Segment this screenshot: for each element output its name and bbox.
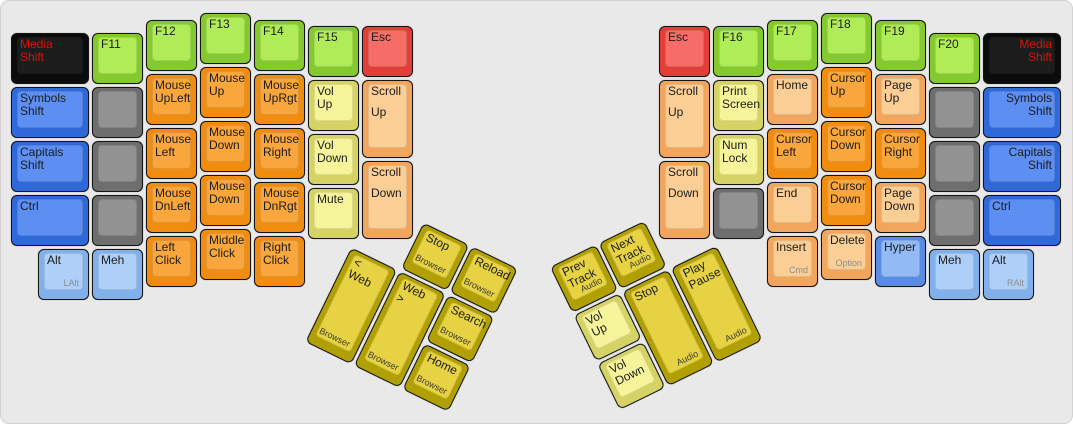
keycap-top: Vol Up [314, 84, 353, 121]
key-label: Web > [394, 280, 435, 318]
keycap-top: SearchBrowser [436, 301, 487, 351]
key-label: Page Down [884, 187, 917, 213]
key-label: Hyper [884, 241, 917, 254]
key-label: Mouse Down [209, 126, 242, 152]
keycap-top: StopBrowser [411, 229, 462, 279]
keycap-top [935, 91, 974, 128]
keycap-top: Num Lock [719, 138, 758, 175]
key-meh-left[interactable]: Meh [92, 249, 143, 300]
key-right-click[interactable]: Right Click [254, 236, 305, 287]
key-meh-right[interactable]: Meh [929, 249, 980, 300]
key-mouse-right[interactable]: Mouse Right [254, 128, 305, 179]
keycap-top: ScrollDown [368, 165, 407, 229]
keycap-top: F13 [206, 17, 245, 54]
key-esc-left[interactable]: Esc [362, 26, 413, 77]
keycap-top [98, 91, 137, 128]
keycap-top: Symbols Shift [989, 91, 1055, 128]
key-blank-right-4[interactable] [929, 195, 980, 246]
key-alt-right[interactable]: AltRAlt [983, 249, 1034, 300]
key-sublabel: LAlt [63, 278, 79, 288]
key-mouse-dnrgt[interactable]: Mouse DnRgt [254, 182, 305, 233]
key-mouse-down-1[interactable]: Mouse Down [200, 121, 251, 172]
keycap-top: Mouse Left [152, 132, 191, 169]
key-label: Cursor Right [884, 133, 917, 159]
key-f19[interactable]: F19 [875, 20, 926, 71]
key-label: F18 [830, 18, 863, 31]
keycap-top: F17 [773, 24, 812, 61]
keycap-top: Mouse Down [206, 179, 245, 216]
key-f15[interactable]: F15 [308, 26, 359, 77]
keycap-top: InsertCmd [773, 240, 812, 277]
key-label: Mouse DnLeft [155, 187, 188, 213]
key-label: Mouse UpLeft [155, 79, 188, 105]
keycap-top: Esc [368, 30, 407, 67]
keycap-top: Page Up [881, 78, 920, 115]
key-label: F15 [317, 31, 350, 44]
key-label: End [776, 187, 809, 200]
key-mouse-uprgt[interactable]: Mouse UpRgt [254, 74, 305, 125]
key-label: < Web [346, 256, 387, 294]
key-mouse-left[interactable]: Mouse Left [146, 128, 197, 179]
key-vol-up-left[interactable]: Vol Up [308, 80, 359, 131]
key-label: ScrollUp [668, 85, 701, 119]
keycap-top: ScrollDown [665, 165, 704, 229]
key-capitals-shift-left[interactable]: Capitals Shift [11, 141, 89, 192]
key-label: Vol Up [584, 302, 625, 340]
keycap-top: Media Shift [989, 37, 1055, 74]
key-label: Esc [668, 31, 701, 44]
key-hyper[interactable]: Hyper [875, 236, 926, 287]
keycap-top: Symbols Shift [17, 91, 83, 128]
key-f11[interactable]: F11 [92, 33, 143, 84]
key-label: F17 [776, 25, 809, 38]
key-label: Insert [776, 241, 809, 254]
key-label: Stop [632, 278, 667, 304]
key-num-lock[interactable]: Num Lock [713, 134, 764, 185]
key-label: Page Up [884, 79, 917, 105]
key-media-shift-left[interactable]: Media Shift [11, 33, 89, 84]
key-label: Mouse DnRgt [263, 187, 296, 213]
keycap-top: Mouse Up [206, 71, 245, 108]
key-cursor-up[interactable]: Cursor Up [821, 67, 872, 118]
key-blank-right-2[interactable] [929, 87, 980, 138]
key-blank-right-3[interactable] [929, 141, 980, 192]
keycap-top: Meh [935, 253, 974, 290]
keycap-top: Capitals Shift [989, 145, 1055, 182]
key-sublabel: Browser [438, 324, 472, 347]
keycap-top: Home [773, 78, 812, 115]
key-label: Capitals Shift [992, 146, 1052, 172]
key-label: Home [425, 352, 460, 378]
keycap-top: F11 [98, 37, 137, 74]
key-label: F11 [101, 38, 134, 51]
keycap-top: Middle Click [206, 233, 245, 270]
key-label: Vol Up [317, 85, 350, 111]
keycap-top: F14 [260, 24, 299, 61]
key-middle-click[interactable]: Middle Click [200, 229, 251, 280]
key-print-screen[interactable]: Print Screen [713, 80, 764, 131]
key-label: Ctrl [992, 200, 1052, 213]
keycap-top: Mute [314, 192, 353, 229]
key-label: F19 [884, 25, 917, 38]
keycap-top: HomeBrowser [412, 350, 463, 400]
key-label-secondary: Down [668, 187, 701, 200]
keycap-top: Prev TrackAudio [557, 251, 608, 301]
key-sublabel: Cmd [789, 265, 808, 275]
key-label: Alt [47, 254, 80, 267]
keycap-top [935, 145, 974, 182]
key-label: Meh [101, 254, 134, 267]
key-home[interactable]: Home [767, 74, 818, 125]
key-blank-right-1[interactable] [713, 188, 764, 239]
keycap-top: Mouse UpRgt [260, 78, 299, 115]
key-sublabel: Browser [318, 326, 352, 349]
key-vol-down-left[interactable]: Vol Down [308, 134, 359, 185]
key-label: Capitals Shift [20, 146, 80, 172]
key-mouse-dnleft[interactable]: Mouse DnLeft [146, 182, 197, 233]
keycap-top: Mouse DnLeft [152, 186, 191, 223]
key-label: Cursor Down [830, 180, 863, 206]
key-scroll-up-right[interactable]: ScrollUp [659, 80, 710, 158]
key-label: Search [449, 303, 484, 329]
keycap-top: F20 [935, 37, 974, 74]
key-blank-left-2[interactable] [92, 141, 143, 192]
keycap-top: AltRAlt [989, 253, 1028, 290]
keycap-top: Capitals Shift [17, 145, 83, 182]
key-label: ScrollDown [668, 166, 701, 200]
keycap-top: ReloadBrowser [459, 253, 510, 303]
key-left-click[interactable]: Left Click [146, 236, 197, 287]
key-label: Left Click [155, 241, 188, 267]
keycap-top: Cursor Up [827, 71, 866, 108]
key-label: Vol Down [317, 139, 350, 165]
keycap-top: AltLAlt [44, 253, 83, 290]
key-label: F14 [263, 25, 296, 38]
key-label: Mouse UpRgt [263, 79, 296, 105]
key-esc-right[interactable]: Esc [659, 26, 710, 77]
key-f18[interactable]: F18 [821, 13, 872, 64]
keycap-top [98, 145, 137, 182]
key-cursor-down-1[interactable]: Cursor Down [821, 121, 872, 172]
key-label: Meh [938, 254, 971, 267]
key-label: F12 [155, 25, 188, 38]
key-label: Reload [472, 255, 507, 281]
keycap-top: Left Click [152, 240, 191, 277]
keycap-top: End [773, 186, 812, 223]
key-label: Mouse Left [155, 133, 188, 159]
key-scroll-up-left[interactable]: ScrollUp [362, 80, 413, 158]
key-end[interactable]: End [767, 182, 818, 233]
key-alt-left[interactable]: AltLAlt [38, 249, 89, 300]
key-label-secondary: Up [668, 106, 701, 119]
keycap-top: Page Down [881, 186, 920, 223]
key-f13[interactable]: F13 [200, 13, 251, 64]
key-label-secondary: Up [371, 106, 404, 119]
key-label: Print Screen [722, 85, 755, 111]
key-label: Cursor Down [830, 126, 863, 152]
key-sublabel: RAlt [1007, 278, 1024, 288]
key-label: Play Pause [681, 254, 722, 292]
keycap-top: F15 [314, 30, 353, 67]
keycap-top: Ctrl [17, 199, 83, 236]
key-f20[interactable]: F20 [929, 33, 980, 84]
key-cursor-right[interactable]: Cursor Right [875, 128, 926, 179]
keycap-top: ScrollUp [368, 84, 407, 148]
key-ctrl-left[interactable]: Ctrl [11, 195, 89, 246]
key-mouse-up[interactable]: Mouse Up [200, 67, 251, 118]
key-page-down[interactable]: Page Down [875, 182, 926, 233]
keycap-top: ScrollUp [665, 84, 704, 148]
key-scroll-down-left[interactable]: ScrollDown [362, 161, 413, 239]
keycap-top: Cursor Right [881, 132, 920, 169]
key-label: F16 [722, 31, 755, 44]
key-sublabel: Browser [366, 349, 400, 372]
key-sublabel: Audio [675, 348, 700, 367]
keycap-top: Mouse Down [206, 125, 245, 162]
key-label: Symbols Shift [992, 92, 1052, 118]
key-label: Num Lock [722, 139, 755, 165]
key-capitals-shift-right[interactable]: Capitals Shift [983, 141, 1061, 192]
keycap-top: Vol Down [604, 348, 655, 398]
keycap-top: Media Shift [17, 37, 83, 74]
key-label: Ctrl [20, 200, 80, 213]
keycap-top [935, 199, 974, 236]
keycap-top: Cursor Down [827, 125, 866, 162]
key-sublabel: Browser [462, 276, 496, 299]
key-label: Media Shift [20, 38, 80, 64]
key-blank-left-3[interactable] [92, 195, 143, 246]
key-label: Vol Down [608, 350, 649, 388]
key-label: Delete [830, 234, 863, 247]
key-delete[interactable]: DeleteOption [821, 229, 872, 280]
keycap-top: Cursor Down [827, 179, 866, 216]
keycap-top: Print Screen [719, 84, 758, 121]
key-label: Mouse Up [209, 72, 242, 98]
key-insert[interactable]: InsertCmd [767, 236, 818, 287]
key-label: F13 [209, 18, 242, 31]
key-label: Symbols Shift [20, 92, 80, 118]
key-mute[interactable]: Mute [308, 188, 359, 239]
keycap-top [98, 199, 137, 236]
keycap-top: Mouse DnRgt [260, 186, 299, 223]
keycap-top: F12 [152, 24, 191, 61]
key-label: Home [776, 79, 809, 92]
keycap-top: Right Click [260, 240, 299, 277]
key-mouse-down-2[interactable]: Mouse Down [200, 175, 251, 226]
keycap-top: F18 [827, 17, 866, 54]
keycap-top: Vol Up [581, 299, 632, 349]
key-f17[interactable]: F17 [767, 20, 818, 71]
key-symbols-shift-right[interactable]: Symbols Shift [983, 87, 1061, 138]
key-label: Mouse Right [263, 133, 296, 159]
key-media-shift-right[interactable]: Media Shift [983, 33, 1061, 84]
keycap-top: Mouse Right [260, 132, 299, 169]
key-label: Mute [317, 193, 350, 206]
key-f16[interactable]: F16 [713, 26, 764, 77]
key-sublabel: Browser [414, 252, 448, 275]
keycap-top: Ctrl [989, 199, 1055, 236]
keycap-top: Esc [665, 30, 704, 67]
key-sublabel: Audio [723, 325, 748, 344]
key-ctrl-right[interactable]: Ctrl [983, 195, 1061, 246]
keycap-top: Meh [98, 253, 137, 290]
keycap-top: Vol Down [314, 138, 353, 175]
key-sublabel: Option [835, 258, 862, 268]
key-symbols-shift-left[interactable]: Symbols Shift [11, 87, 89, 138]
keycap-top: F16 [719, 30, 758, 67]
key-label: Cursor Up [830, 72, 863, 98]
key-page-up[interactable]: Page Up [875, 74, 926, 125]
keycap-top: F19 [881, 24, 920, 61]
keycap-top: Next TrackAudio [606, 227, 657, 277]
key-label: Mouse Down [209, 180, 242, 206]
key-label: ScrollUp [371, 85, 404, 119]
key-label-secondary: Down [371, 187, 404, 200]
key-label: Alt [992, 254, 1025, 267]
key-label: Right Click [263, 241, 296, 267]
key-sublabel: Browser [415, 373, 449, 396]
key-label: Esc [371, 31, 404, 44]
key-label: F20 [938, 38, 971, 51]
key-label: Middle Click [209, 234, 242, 260]
key-scroll-down-right[interactable]: ScrollDown [659, 161, 710, 239]
key-label: ScrollDown [371, 166, 404, 200]
key-label: Cursor Left [776, 133, 809, 159]
keycap-top: Cursor Left [773, 132, 812, 169]
key-blank-left-1[interactable] [92, 87, 143, 138]
key-label: Media Shift [992, 38, 1052, 64]
key-f14[interactable]: F14 [254, 20, 305, 71]
keycap-top [719, 192, 758, 229]
key-cursor-down-2[interactable]: Cursor Down [821, 175, 872, 226]
keycap-top: DeleteOption [827, 233, 866, 270]
key-label: Stop [424, 231, 459, 257]
keycap-top: Mouse UpLeft [152, 78, 191, 115]
key-cursor-left[interactable]: Cursor Left [767, 128, 818, 179]
keycap-top: Hyper [881, 240, 920, 277]
key-f12[interactable]: F12 [146, 20, 197, 71]
keyboard-layout: Media ShiftSymbols ShiftCapitals ShiftCt… [0, 0, 1073, 424]
key-mouse-upleft[interactable]: Mouse UpLeft [146, 74, 197, 125]
